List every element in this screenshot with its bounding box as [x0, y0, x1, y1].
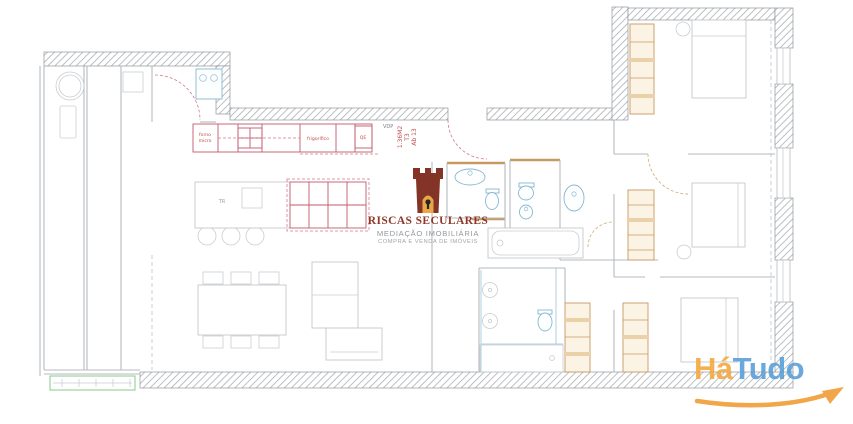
bathtub	[488, 228, 583, 258]
window-3	[777, 260, 790, 302]
bedroom-door-arc	[648, 154, 688, 194]
bedside-table	[677, 245, 691, 259]
wardrobe	[628, 190, 654, 260]
unit-type: T3	[404, 133, 411, 142]
island-label: TR	[218, 199, 226, 205]
wardrobe	[630, 24, 654, 114]
bedside-table	[676, 22, 690, 36]
stool	[246, 227, 264, 245]
floorplan-canvas: forno micro frigorífico QE TR VDP 1.36M2…	[0, 0, 853, 424]
wall-top-right	[628, 8, 775, 20]
wall-mid-pier	[612, 7, 628, 120]
chair	[259, 272, 279, 284]
water-heater	[56, 72, 84, 100]
agency-watermark: RISCAS SECULARES MEDIAÇÃO IMOBILIÁRIA CO…	[366, 167, 490, 245]
agency-name: RISCAS SECULARES	[366, 215, 490, 227]
vanity-counter	[480, 345, 563, 372]
window-2	[777, 148, 790, 198]
unit-number: Ab 13	[411, 128, 418, 146]
agency-subtitle: MEDIAÇÃO IMOBILIÁRIA	[366, 229, 490, 238]
washing-machine	[60, 106, 76, 138]
laundry-room	[155, 69, 222, 120]
portal-watermark: HáTudo	[694, 352, 850, 411]
bathroom-bottom	[479, 268, 590, 372]
agency-tagline: COMPRA E VENDA DE IMÓVEIS	[366, 239, 490, 245]
bathroom-door-arc	[588, 222, 613, 247]
stool	[222, 227, 240, 245]
window-1	[777, 48, 790, 84]
entrance: VDP 1.36M2 T3 Ab 13	[383, 120, 487, 159]
bed	[692, 20, 746, 98]
bedroom-2	[628, 183, 745, 260]
planter-box	[50, 376, 135, 390]
living-room	[198, 262, 382, 360]
wall-right-pier-3	[775, 198, 793, 260]
washbasin	[564, 185, 584, 211]
kitchen-counter: forno micro frigorífico QE	[193, 124, 380, 154]
oven-label-2: micro	[199, 138, 212, 144]
door-tag: VDP	[383, 124, 393, 130]
chair	[231, 336, 251, 348]
oven-label-1: forno	[199, 132, 211, 138]
chair	[203, 272, 223, 284]
fridge-label: frigorífico	[307, 135, 329, 142]
service-strip	[56, 72, 143, 138]
unit-area: 1.36M2	[397, 126, 404, 149]
wall-right-pier-2	[775, 84, 793, 148]
electrical-panel-label: QE	[360, 135, 367, 141]
cabinet-box	[123, 72, 143, 92]
chair	[203, 336, 223, 348]
wall-top-left	[44, 52, 230, 66]
dining-table	[198, 285, 286, 335]
round-washbasin	[483, 283, 498, 298]
wall-kitchen-top	[230, 108, 448, 120]
entrance-door-arc	[448, 120, 487, 159]
unit-label-rotated: 1.36M2 T3 Ab 13	[397, 126, 418, 149]
sofa-chaise	[326, 328, 382, 360]
chair	[259, 336, 279, 348]
portal-word-part2: Tudo	[733, 351, 804, 386]
round-washbasin	[483, 314, 498, 329]
toilet	[538, 313, 552, 331]
hall-closet	[565, 303, 590, 372]
castle-tower-icon	[412, 167, 444, 213]
bedroom-1	[630, 20, 746, 194]
bed	[692, 183, 745, 247]
wall-right-pier-1	[775, 8, 793, 48]
island-counter	[195, 182, 290, 228]
laundry-sink	[196, 69, 222, 99]
toilet	[519, 186, 534, 200]
stool	[198, 227, 216, 245]
wall-hall-top	[487, 108, 614, 120]
swoosh-arrow-icon	[694, 385, 850, 411]
kitchen-island: TR	[195, 179, 369, 245]
portal-word-part1: Há	[694, 351, 733, 386]
portal-wordmark: HáTudo	[694, 352, 850, 385]
chair	[231, 272, 251, 284]
laundry-door-arc	[155, 75, 200, 120]
